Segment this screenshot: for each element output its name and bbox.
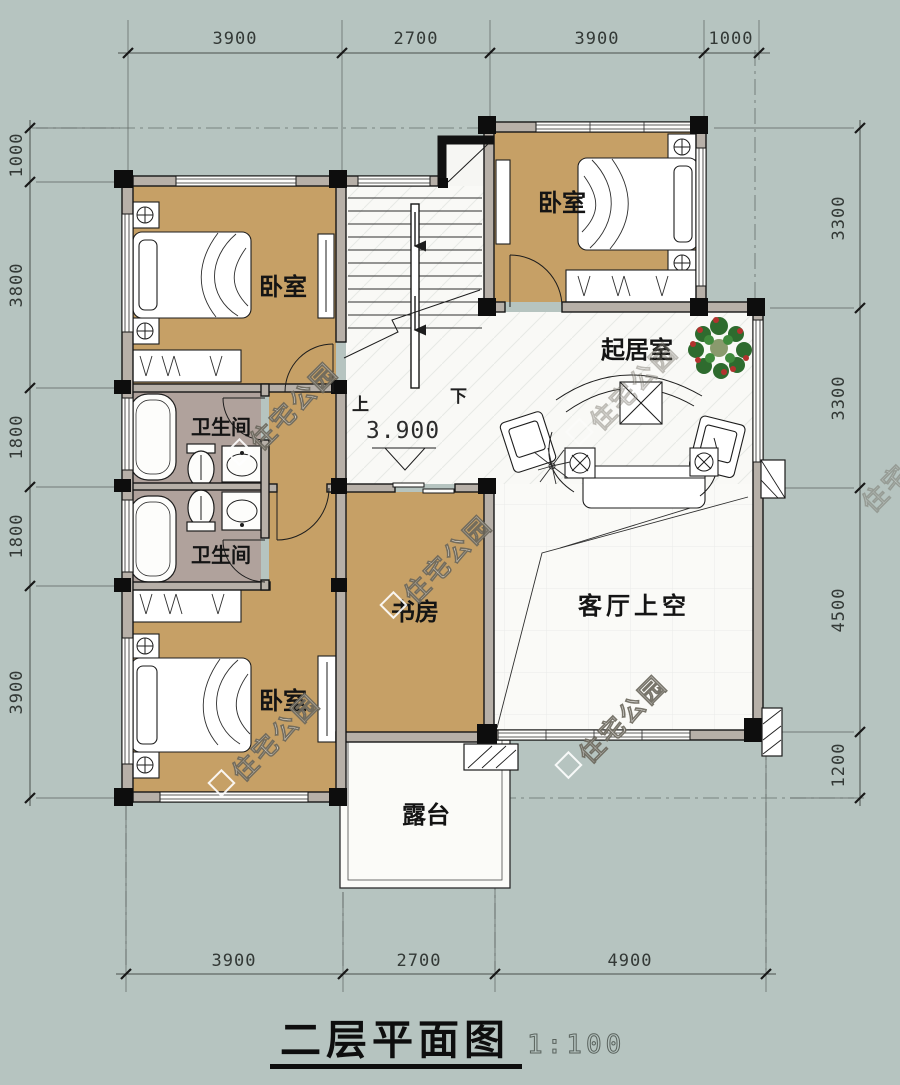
nightstand <box>131 752 159 778</box>
window <box>122 398 133 470</box>
dim-right-3: 1200 <box>829 743 849 788</box>
window <box>122 638 133 764</box>
label-bathroom-upper: 卫生间 <box>191 415 251 439</box>
dim-top-1: 2700 <box>394 29 439 49</box>
dim-top-3: 1000 <box>709 29 754 49</box>
washbasin-lower <box>222 492 262 530</box>
side-table-left <box>565 448 595 478</box>
window <box>696 148 706 286</box>
wardrobe <box>131 588 241 622</box>
floorplan-drawing: 3900 2700 3900 1000 3900 2700 4900 100 <box>0 0 900 1085</box>
window <box>122 500 133 572</box>
stair-down-label: 下 <box>450 387 467 407</box>
label-bathroom-lower: 卫生间 <box>191 543 251 567</box>
side-table-right <box>690 448 718 476</box>
window <box>176 176 296 186</box>
wardrobe <box>566 270 696 302</box>
dim-left-2: 1800 <box>7 415 27 460</box>
label-bedroom-top-right: 卧室 <box>538 189 586 217</box>
label-void: 客厅上空 <box>578 592 690 620</box>
pilaster-hatch <box>762 708 782 756</box>
dim-top-2: 3900 <box>575 29 620 49</box>
pilaster-hatch <box>761 460 785 498</box>
nightstand <box>131 202 159 228</box>
pilaster-hatch <box>464 744 518 770</box>
toilet-upper <box>187 444 215 487</box>
floorplan-page: 3900 2700 3900 1000 3900 2700 4900 100 <box>0 0 900 1085</box>
bathtub-lower <box>130 496 176 582</box>
window <box>122 214 133 332</box>
label-terrace: 露台 <box>402 801 450 829</box>
dim-left-3: 1800 <box>7 514 27 559</box>
dim-right-2: 4500 <box>829 588 849 633</box>
bathtub-upper <box>130 394 176 480</box>
window <box>160 792 308 802</box>
dim-right-0: 3300 <box>829 196 849 241</box>
dim-left-0: 1000 <box>7 133 27 178</box>
wardrobe <box>131 350 241 382</box>
dim-bottom-1: 2700 <box>397 951 442 971</box>
window <box>358 176 430 186</box>
toilet-lower <box>187 490 215 531</box>
dim-bottom-0: 3900 <box>212 951 257 971</box>
dim-bottom-2: 4900 <box>608 951 653 971</box>
dim-top-0: 3900 <box>213 29 258 49</box>
page-title: 二层平面图 <box>280 1016 510 1064</box>
nightstand <box>668 134 696 160</box>
dim-left-1: 3800 <box>7 263 27 308</box>
bed <box>578 158 698 250</box>
label-bedroom-top-left: 卧室 <box>259 273 307 301</box>
window <box>753 320 763 462</box>
elevation-label: 3.900 <box>366 418 440 444</box>
nightstand <box>131 318 159 344</box>
nightstand <box>131 634 159 658</box>
title-underline <box>270 1064 522 1069</box>
scale-label: 1:100 <box>527 1030 625 1060</box>
stair-up-label: 上 <box>352 395 369 415</box>
dim-left-4: 3900 <box>7 670 27 715</box>
window <box>536 122 694 132</box>
bed <box>131 658 251 752</box>
dim-right-1: 3300 <box>829 376 849 421</box>
bed <box>133 232 251 318</box>
tall-cabinet <box>496 160 510 244</box>
